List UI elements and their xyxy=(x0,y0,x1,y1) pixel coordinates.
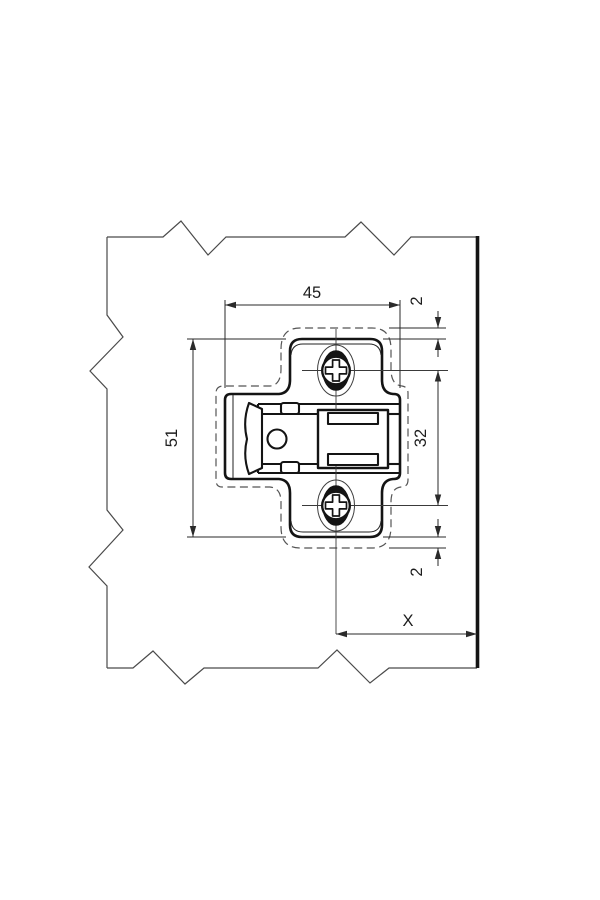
arrowhead-bottom xyxy=(190,526,196,537)
panel-left-break-edge xyxy=(89,237,123,668)
arrowhead-down xyxy=(435,526,441,537)
arrowhead-left xyxy=(336,631,347,637)
technical-drawing: 45 2 51 32 2 X xyxy=(0,0,600,900)
drawing-canvas: 45 2 51 32 2 X xyxy=(0,0,600,900)
dim-edge-distance-value: X xyxy=(402,612,413,630)
arrowhead-right xyxy=(466,631,477,637)
arrowhead-bottom xyxy=(435,495,441,506)
panel-outline xyxy=(89,221,478,684)
arrowhead-top xyxy=(435,371,441,382)
arrowhead-left xyxy=(225,302,236,308)
dim-top-overhang-value: 2 xyxy=(408,296,426,305)
plate-mechanism xyxy=(245,403,400,474)
dim-bottom-overhang-value: 2 xyxy=(408,567,426,576)
screw-bottom xyxy=(302,466,448,634)
dimension-hole-spacing: 32 xyxy=(412,371,441,506)
dimension-edge-distance: X xyxy=(336,612,477,637)
cam-lever xyxy=(245,403,262,474)
dim-hole-spacing-value: 32 xyxy=(412,429,430,447)
arrowhead-down xyxy=(435,317,441,328)
arrowhead-right xyxy=(389,302,400,308)
arrowhead-up xyxy=(435,548,441,559)
panel-top-break-edge xyxy=(107,221,477,255)
arrowhead-top xyxy=(190,339,196,350)
dimension-plate-width: 45 xyxy=(225,284,400,388)
arrowhead-up xyxy=(435,339,441,350)
dim-plate-height-value: 51 xyxy=(163,429,181,447)
dimension-bottom-overhang: 2 xyxy=(383,519,446,577)
lever-hole xyxy=(268,430,287,449)
panel-bottom-break-edge xyxy=(107,650,477,684)
dim-plate-width-value: 45 xyxy=(303,284,321,302)
latch-tab-top xyxy=(281,403,299,414)
screw-top xyxy=(302,329,448,410)
latch-tab-bottom xyxy=(281,462,299,473)
